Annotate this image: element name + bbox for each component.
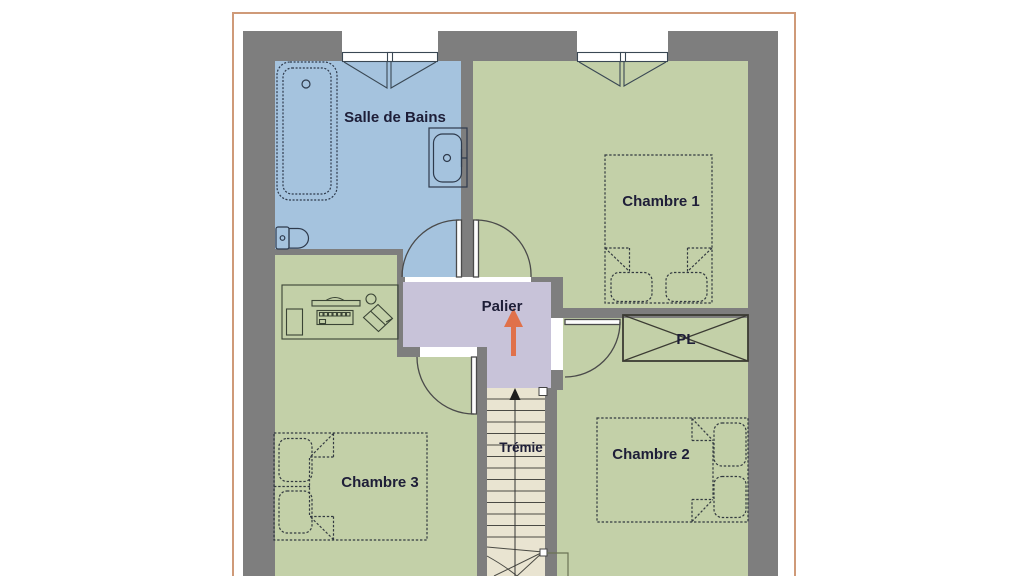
door-leaf (457, 220, 462, 277)
door-leaf (474, 220, 479, 277)
door-opening-chambre2 (551, 318, 563, 370)
wall-palier-top-right (531, 277, 551, 282)
floor-plan-canvas: Salle de Bains Chambre 1 Palier PL Trémi… (0, 0, 1024, 576)
wall-right (748, 31, 778, 576)
wall-bath-bottom (270, 249, 403, 255)
label-chambre-1: Chambre 1 (622, 193, 700, 210)
door-leaf (565, 320, 620, 325)
label-chambre-2: Chambre 2 (612, 446, 690, 463)
wall-top (243, 31, 778, 61)
room-salle-de-bains (275, 61, 466, 277)
stair-newel-post-bottom (540, 549, 547, 556)
window-mullion (621, 53, 626, 62)
door-opening-chambre3 (420, 347, 477, 357)
stair-newel-post-top (539, 388, 547, 396)
wall-chambre3-stairs (477, 347, 487, 576)
label-tremie: Trémie (499, 440, 543, 455)
floor-plan: Salle de Bains Chambre 1 Palier PL Trémi… (0, 0, 1024, 576)
door-leaf (472, 357, 477, 414)
wall-chambre1-bottom (563, 308, 748, 318)
label-salle-de-bains: Salle de Bains (344, 109, 446, 126)
wall-palier-top-left (397, 277, 405, 282)
wall-stairs-right (545, 388, 557, 576)
up-arrow-shaft (511, 326, 516, 356)
wall-left (243, 31, 275, 576)
door-opening-bath-chambre1 (405, 277, 531, 282)
label-palier: Palier (482, 298, 523, 315)
window-mullion (388, 53, 393, 62)
label-chambre-3: Chambre 3 (341, 474, 419, 491)
label-placard: PL (676, 331, 695, 348)
